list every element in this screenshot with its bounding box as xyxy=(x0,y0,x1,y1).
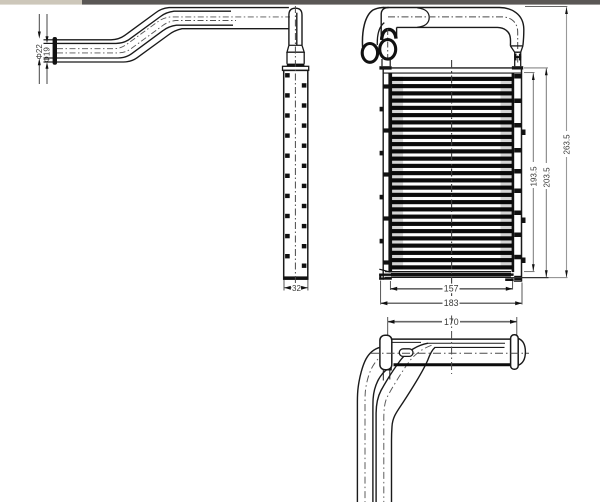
svg-text:157: 157 xyxy=(444,284,459,294)
svg-text:183: 183 xyxy=(444,298,459,308)
svg-text:263.5: 263.5 xyxy=(563,134,572,155)
svg-text:193.5: 193.5 xyxy=(529,166,538,187)
svg-text:Φ19: Φ19 xyxy=(43,47,52,63)
svg-text:32: 32 xyxy=(292,284,301,293)
svg-text:203.5: 203.5 xyxy=(542,167,551,188)
